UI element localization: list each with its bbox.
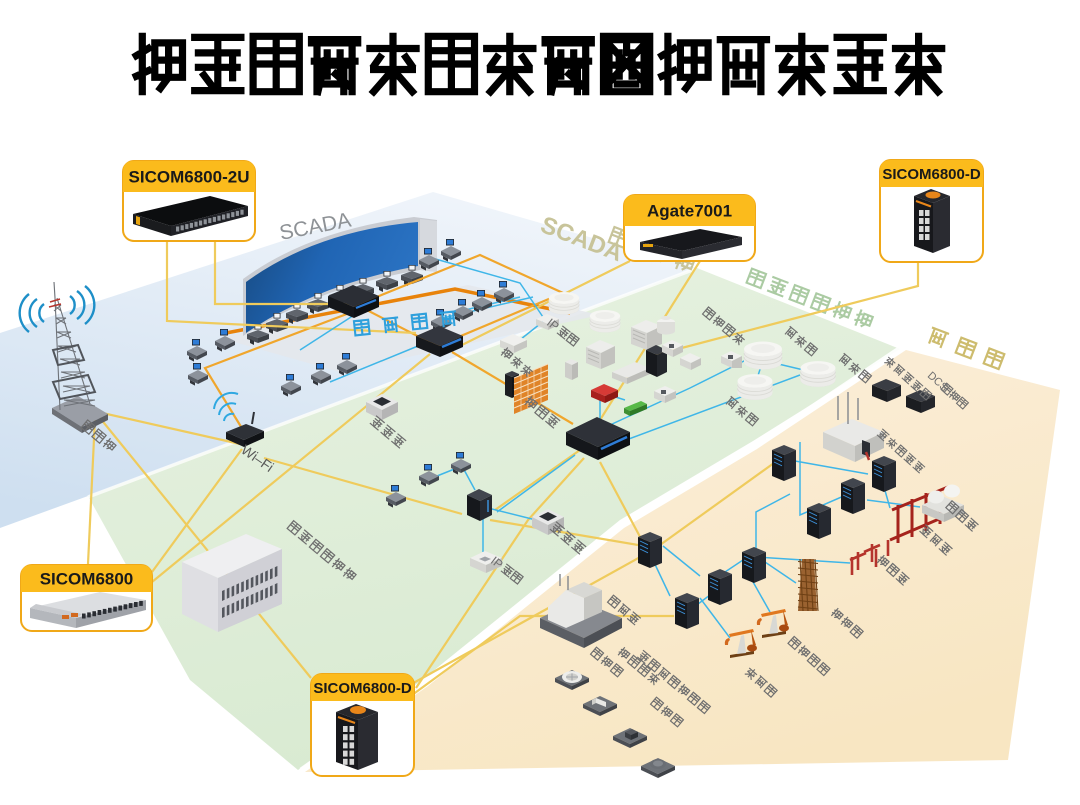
svg-text:SICOM6800-D: SICOM6800-D	[882, 166, 981, 183]
svg-text:SICOM6800-D: SICOM6800-D	[313, 680, 412, 697]
svg-text:SICOM6800: SICOM6800	[40, 570, 134, 589]
svg-text:SICOM6800-2U: SICOM6800-2U	[129, 168, 250, 187]
svg-text:Agate7001: Agate7001	[647, 202, 732, 221]
